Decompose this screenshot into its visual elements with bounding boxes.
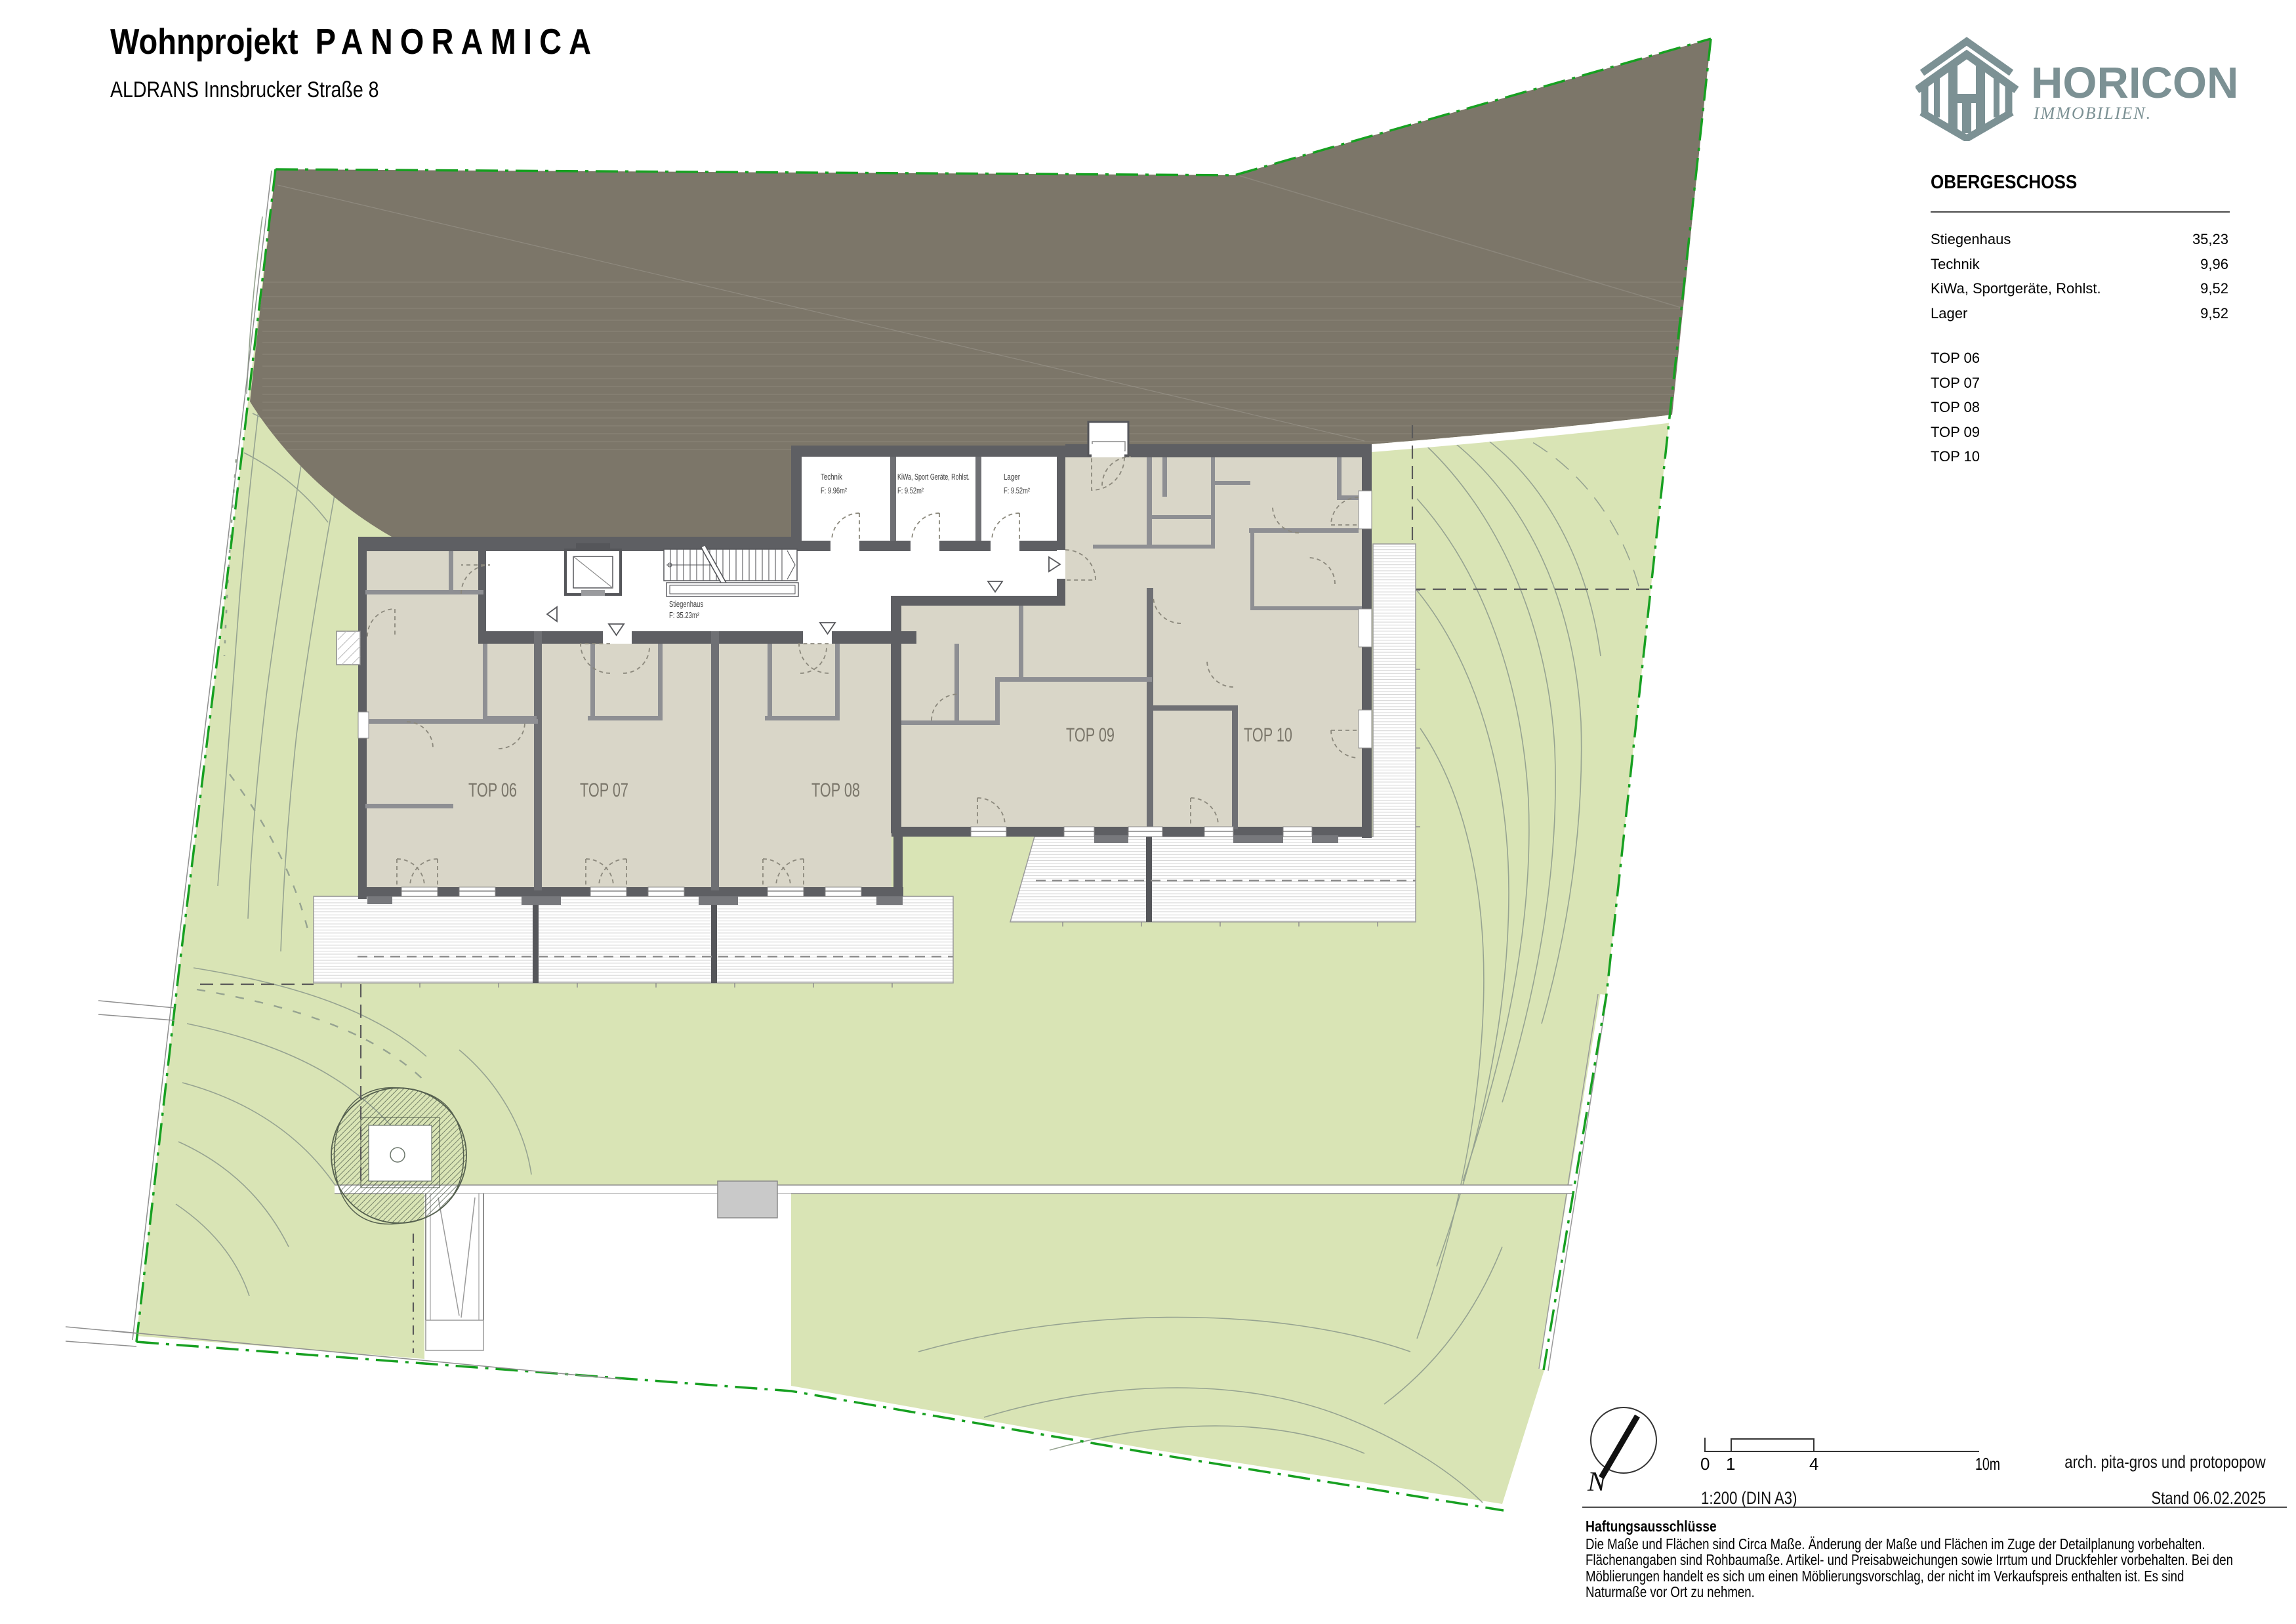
svg-text:TOP 09: TOP 09	[1066, 724, 1115, 746]
svg-text:F: 9.52m²: F: 9.52m²	[1004, 486, 1030, 495]
svg-text:TOP 07: TOP 07	[580, 780, 628, 801]
svg-text:10m: 10m	[1975, 1454, 2000, 1474]
svg-text:F: 35.23m²: F: 35.23m²	[669, 610, 699, 620]
svg-text:TOP 08: TOP 08	[811, 780, 860, 801]
svg-text:F: 9.52m²: F: 9.52m²	[897, 486, 924, 495]
svg-text:1: 1	[1726, 1454, 1735, 1474]
svg-text:TOP 06: TOP 06	[468, 780, 517, 801]
svg-text:KiWa, Sport Geräte, Rohlst.: KiWa, Sport Geräte, Rohlst.	[897, 472, 970, 482]
svg-text:Technik: Technik	[821, 472, 842, 482]
svg-text:F: 9.96m²: F: 9.96m²	[821, 486, 847, 495]
svg-text:Stiegenhaus: Stiegenhaus	[669, 599, 703, 609]
svg-text:TOP 10: TOP 10	[1244, 724, 1292, 746]
svg-text:4: 4	[1809, 1454, 1818, 1474]
svg-text:Lager: Lager	[1004, 472, 1021, 482]
svg-text:N: N	[1587, 1467, 1607, 1497]
svg-text:0: 0	[1700, 1454, 1710, 1474]
